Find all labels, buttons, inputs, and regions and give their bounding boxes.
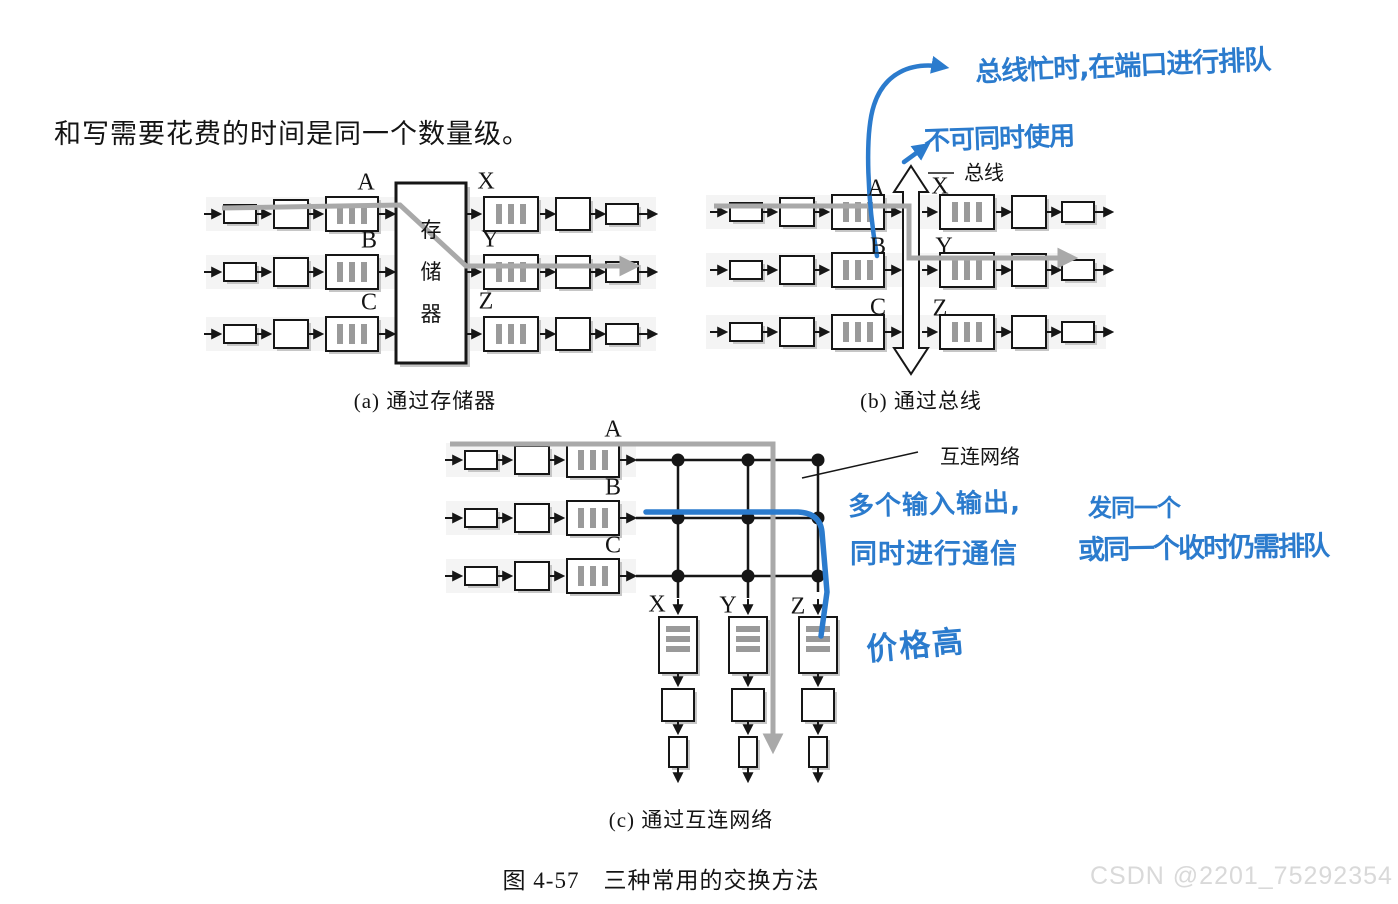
- note-network-queue-line1: 发同一个: [1088, 488, 1180, 523]
- port-label-y: Y: [935, 234, 952, 261]
- intro-text: 和写需要花费的时间是同一个数量级。: [54, 112, 530, 151]
- figure-caption: 图 4-57 三种常用的交换方法: [503, 861, 820, 895]
- port-label-b: B: [870, 234, 886, 261]
- note-network-parallel-line1: 多个输入输出,: [848, 482, 1022, 524]
- port-label-x: X: [648, 592, 665, 619]
- port-label-x: X: [931, 174, 948, 201]
- bus-label: 总线: [964, 157, 1004, 186]
- diagram-a-input-rows: [204, 197, 394, 354]
- port-label-c: C: [605, 533, 621, 560]
- note-bus-share: 不可同时使用: [923, 115, 1074, 157]
- diagram-c-caption: (c) 通过互连网络: [609, 804, 774, 834]
- diagram-a-output-rows: [466, 197, 656, 354]
- diagram-b-output-rows: [922, 195, 1112, 352]
- port-label-z: Z: [933, 296, 948, 323]
- network-label: 互连网络: [940, 441, 1020, 470]
- port-label-a: A: [604, 417, 621, 444]
- diagram-a-caption: (a) 通过存储器: [354, 385, 497, 415]
- csdn-watermark: CSDN @2201_75292354: [1090, 862, 1393, 891]
- port-label-b: B: [361, 228, 377, 255]
- port-label-z: Z: [479, 289, 494, 316]
- port-label-c: C: [870, 295, 886, 322]
- memory-label: 存储器: [419, 209, 443, 335]
- textbook-scan-page: 和写需要花费的时间是同一个数量级。 存储器 A B C X Y Z (a) 通过…: [0, 0, 1398, 904]
- port-label-b: B: [605, 475, 621, 502]
- diagram-c-output-columns: [659, 599, 840, 781]
- port-label-y: Y: [481, 227, 498, 254]
- port-label-x: X: [477, 169, 494, 196]
- diagram-c-input-rows: [445, 443, 635, 596]
- note-cost: 价格高: [864, 616, 967, 669]
- port-label-c: C: [361, 290, 377, 317]
- annotation-small-arrow: [904, 146, 926, 162]
- port-label-a: A: [357, 170, 374, 197]
- port-label-a: A: [867, 176, 884, 203]
- diagram-b-caption: (b) 通过总线: [860, 385, 982, 415]
- crossbar-grid: [636, 460, 818, 598]
- note-network-parallel-line2: 同时进行通信: [850, 532, 1018, 571]
- port-label-y: Y: [719, 593, 736, 620]
- note-network-queue-line2: 或同一个收时仍需排队: [1078, 524, 1329, 567]
- port-label-z: Z: [791, 594, 806, 621]
